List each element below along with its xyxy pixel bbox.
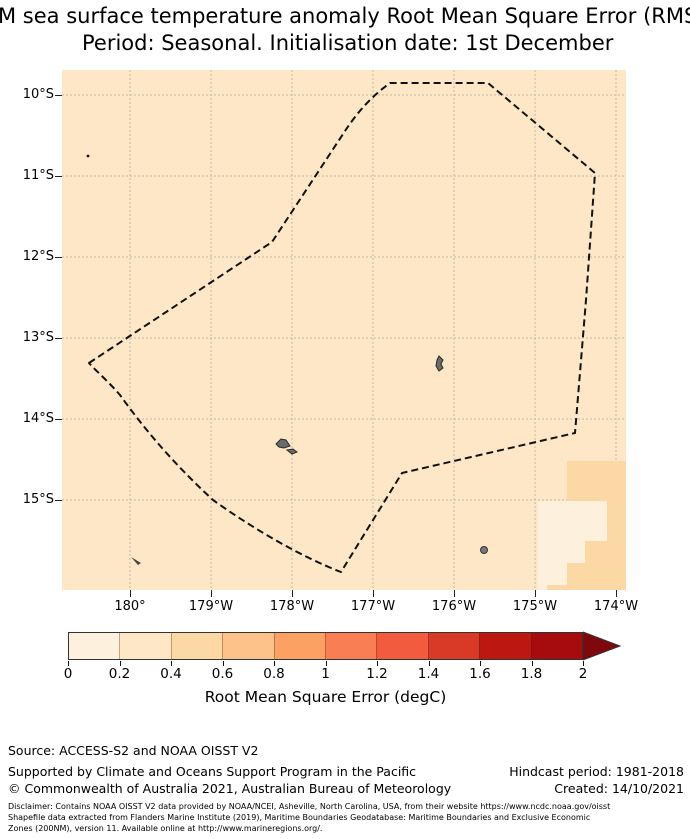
x-tick-label: 180° <box>100 599 160 614</box>
x-tick-label: 176°W <box>424 599 484 614</box>
colorbar-bin <box>376 633 427 659</box>
x-tick-mark <box>616 590 617 597</box>
y-tick-label: 11°S <box>10 168 54 183</box>
colorbar-tick-label: 1.6 <box>460 666 500 682</box>
source-text: Source: ACCESS-S2 and NOAA OISST V2 <box>8 743 258 758</box>
colorbar-bin <box>222 633 273 659</box>
y-tick-mark <box>55 338 62 339</box>
island-wallis <box>436 356 443 371</box>
y-tick-label: 13°S <box>10 330 54 345</box>
colorbar-tick-label: 0.8 <box>254 666 294 682</box>
y-tick-label: 14°S <box>10 411 54 426</box>
island-alofi <box>287 449 297 454</box>
copyright-text: © Commonwealth of Australia 2021, Austra… <box>8 781 451 796</box>
chart-subtitle: Period: Seasonal. Initialisation date: 1… <box>82 31 613 55</box>
y-tick-mark <box>55 176 62 177</box>
colorbar-bin <box>325 633 376 659</box>
colorbar-tick-label: 2 <box>563 666 603 682</box>
colorbar-tick-label: 0.6 <box>203 666 243 682</box>
colorbar <box>68 632 583 660</box>
supported-text: Supported by Climate and Oceans Support … <box>8 764 416 779</box>
colorbar-bin <box>274 633 325 659</box>
x-tick-label: 177°W <box>343 599 403 614</box>
x-tick-mark <box>454 590 455 597</box>
map-plot-area <box>62 70 626 590</box>
colorbar-bin <box>531 633 582 659</box>
created-date-text: Created: 14/10/2021 <box>404 781 684 796</box>
hindcast-period-text: Hindcast period: 1981-2018 <box>404 764 684 779</box>
x-tick-label: 174°W <box>586 599 646 614</box>
y-tick-label: 12°S <box>10 249 54 264</box>
colorbar-axis-label: Root Mean Square Error (degC) <box>68 688 583 706</box>
colorbar-tick-label: 0.2 <box>100 666 140 682</box>
island-northwest-dot <box>87 155 90 158</box>
colorbar-tick-label: 1.2 <box>357 666 397 682</box>
map-overlay <box>62 70 626 590</box>
y-tick-label: 10°S <box>10 87 54 102</box>
y-tick-mark <box>55 419 62 420</box>
figure: { "title": { "line1": "M sea surface tem… <box>0 0 690 839</box>
x-tick-label: 175°W <box>505 599 565 614</box>
disclaimer-line-2: Shapefile data extracted from Flanders M… <box>8 812 690 823</box>
eez-boundary-dashed <box>89 83 595 572</box>
x-tick-label: 179°W <box>181 599 241 614</box>
colorbar-bin <box>428 633 479 659</box>
disclaimer-block: Disclaimer: Contains NOAA OISST V2 data … <box>8 801 690 834</box>
colorbar-tick-label: 0.4 <box>151 666 191 682</box>
colorbar-bin <box>119 633 170 659</box>
x-tick-mark <box>211 590 212 597</box>
island-southwest-sliver <box>131 557 141 565</box>
y-tick-mark <box>55 257 62 258</box>
colorbar-tick-label: 1.8 <box>512 666 552 682</box>
island-futuna <box>276 439 290 448</box>
island-southeast-dot <box>481 547 488 554</box>
colorbar-extend-arrow <box>583 631 623 661</box>
y-tick-label: 15°S <box>10 492 54 507</box>
chart-title: M sea surface temperature anomaly Root M… <box>0 4 690 28</box>
colorbar-tick-label: 1 <box>306 666 346 682</box>
disclaimer-line-3: Zones (200NM), version 11. Available onl… <box>8 823 690 834</box>
x-tick-mark <box>373 590 374 597</box>
colorbar-tick-label: 0 <box>48 666 88 682</box>
x-tick-mark <box>535 590 536 597</box>
x-tick-mark <box>292 590 293 597</box>
colorbar-bin <box>69 633 119 659</box>
disclaimer-line-1: Disclaimer: Contains NOAA OISST V2 data … <box>8 801 690 812</box>
x-tick-mark <box>130 590 131 597</box>
colorbar-tick-label: 1.4 <box>409 666 449 682</box>
colorbar-bin <box>171 633 222 659</box>
y-tick-mark <box>55 95 62 96</box>
colorbar-bin <box>479 633 530 659</box>
y-tick-mark <box>55 500 62 501</box>
x-tick-label: 178°W <box>262 599 322 614</box>
